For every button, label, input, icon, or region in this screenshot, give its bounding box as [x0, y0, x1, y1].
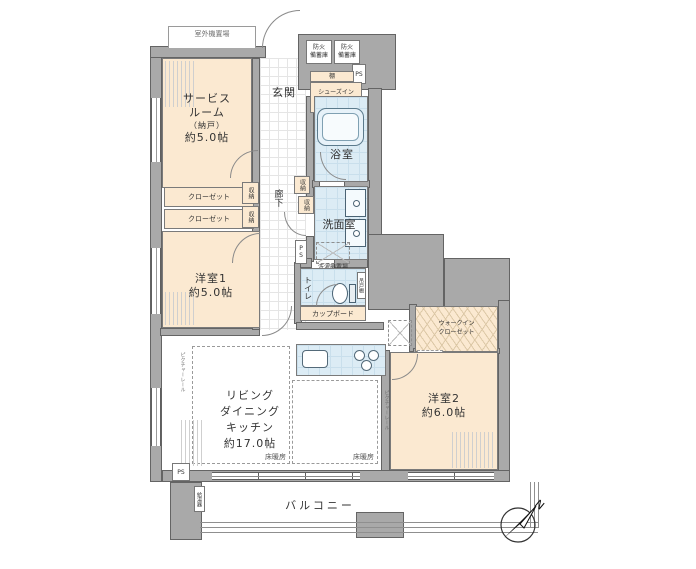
- ps-washroom-label: PS: [298, 245, 305, 259]
- ldk-label: リビング ダイニング キッチン 約17.0帖: [200, 388, 300, 452]
- picture-rail-right-label: ピクチャーレール: [384, 390, 391, 430]
- service-room-label-l1: サービス: [166, 92, 248, 106]
- wic-label-l1: ウォークイン: [416, 320, 497, 328]
- wic-label-l2: クローゼット: [416, 329, 497, 337]
- ldk-label-l2: ダイニング: [200, 404, 300, 420]
- toilet-label-text: トイレ: [303, 276, 314, 300]
- wall-int-corridor-bath: [306, 96, 314, 212]
- picture-rail-right: ピクチャーレール: [383, 384, 391, 436]
- outdoor-unit-area: 室外機置場: [168, 26, 256, 48]
- kitchen-sink: [302, 350, 328, 368]
- wall-bedroom1-bottom: [160, 328, 260, 336]
- ldk-label-l4: 約17.0帖: [200, 436, 300, 452]
- window-ldk-side: [151, 388, 161, 446]
- toilet-hanging-cabinet: 吊戸棚: [357, 272, 366, 299]
- window-bedroom2-balcony: [408, 472, 494, 480]
- balcony-label: バルコニー: [278, 499, 362, 513]
- storage-b2-label: 収納: [302, 199, 311, 211]
- service-room-label-l2: ルーム: [166, 106, 248, 120]
- window-service-room: [151, 98, 161, 162]
- fire-storage-1: 防火 備蓄庫: [306, 40, 332, 64]
- picture-rail-left-label: ピクチャーレール: [180, 352, 187, 392]
- bedroom2-label-l2: 約6.0帖: [398, 406, 490, 420]
- closet-2-label: クローゼット: [165, 215, 253, 224]
- floor-heating-2: 床暖房: [292, 380, 378, 464]
- compass: N: [494, 494, 548, 550]
- compass-north-label: N: [532, 497, 547, 512]
- window-bedroom1: [151, 248, 161, 314]
- ps-top: PS: [352, 64, 366, 84]
- ps-ldk-label: PS: [173, 469, 189, 477]
- wall-right-lower: [498, 300, 510, 482]
- door-arc-entrance: [262, 10, 300, 48]
- ps-top-label: PS: [353, 71, 365, 79]
- storage-a1-label: 収納: [246, 187, 255, 199]
- water-heater-label: 給湯器: [196, 492, 203, 507]
- bedroom1-label-l1: 洋室1: [168, 272, 254, 286]
- hallway-label-text: 廊下: [272, 189, 285, 207]
- toilet-label: トイレ: [302, 272, 314, 304]
- water-heater: 給湯器: [194, 486, 205, 512]
- fire-storage-1-label-l2: 備蓄庫: [307, 52, 331, 60]
- hallway-label: 廊下: [271, 178, 285, 218]
- floor-plan: 室外機置場 防火 備蓄庫 防火 備蓄庫 PS 棚 シューズイン クローゼット 棚…: [0, 0, 696, 569]
- hatch-bedroom2-corner: [452, 432, 496, 468]
- refrigerator-space: [388, 320, 412, 346]
- kitchen-stove: [352, 348, 384, 372]
- storage-a1: 収納: [242, 182, 259, 204]
- bedroom1-label-l2: 約5.0帖: [168, 286, 254, 300]
- bath-label: 浴室: [320, 148, 364, 162]
- bedroom1-label: 洋室1 約5.0帖: [168, 272, 254, 301]
- walk-in-closet: ウォークイン クローゼット: [415, 306, 498, 352]
- bedroom2-label-l1: 洋室2: [398, 392, 490, 406]
- fire-storage-2: 防火 備蓄庫: [334, 40, 360, 64]
- fire-storage-1-label-l1: 防火: [307, 44, 331, 52]
- closet-1-label: クローゼット: [165, 193, 253, 202]
- cupboard: カップボード: [300, 306, 366, 321]
- stove-burner-3: [361, 360, 372, 371]
- outdoor-unit-label: 室外機置場: [169, 30, 255, 39]
- balcony-fence: [200, 522, 538, 534]
- closet-2: クローゼット: [164, 209, 254, 229]
- shelf-top: 棚: [310, 71, 354, 82]
- closet-1: クローゼット: [164, 187, 254, 207]
- fire-storage-2-label-l1: 防火: [335, 44, 359, 52]
- floor-heating-1-label: 床暖房: [265, 452, 286, 462]
- service-room-label-l3: （納戸）: [166, 121, 248, 131]
- floor-heating-2-label: 床暖房: [353, 452, 374, 462]
- storage-b1: 収納: [294, 176, 310, 194]
- service-room-label-l4: 約5.0帖: [166, 131, 248, 145]
- ldk-label-l1: リビング: [200, 388, 300, 404]
- wall-right-upper: [368, 88, 382, 238]
- stove-burner-2: [368, 350, 379, 361]
- wall-ldk-top: [296, 322, 384, 330]
- stove-burner-1: [354, 350, 365, 361]
- bathtub: [317, 108, 364, 146]
- laundry-space: [316, 242, 350, 264]
- service-room-label: サービス ルーム （納戸） 約5.0帖: [166, 92, 248, 145]
- compass-icon: N: [494, 494, 548, 550]
- wall-mass-mid-right-1: [368, 234, 444, 310]
- window-ldk-balcony: [212, 472, 360, 480]
- washroom-label: 洗面室: [314, 218, 364, 232]
- hanging-cabinet-label: 吊戸棚: [358, 278, 365, 293]
- entrance-label: 玄関: [264, 86, 304, 100]
- cupboard-label: カップボード: [301, 310, 365, 319]
- storage-a2: 収納: [242, 206, 259, 228]
- shelf-top-label: 棚: [311, 73, 353, 81]
- ldk-label-l3: キッチン: [200, 420, 300, 436]
- storage-b1-label: 収納: [298, 179, 307, 191]
- toilet-tank: [349, 284, 356, 303]
- ps-ldk: PS: [172, 463, 190, 481]
- storage-a2-label: 収納: [246, 211, 255, 223]
- washbasin-1: [345, 189, 366, 217]
- ps-washroom: PS: [295, 240, 307, 264]
- fire-storage-2-label-l2: 備蓄庫: [335, 52, 359, 60]
- bedroom2-label: 洋室2 約6.0帖: [398, 392, 490, 421]
- picture-rail-left: ピクチャーレール: [179, 346, 187, 398]
